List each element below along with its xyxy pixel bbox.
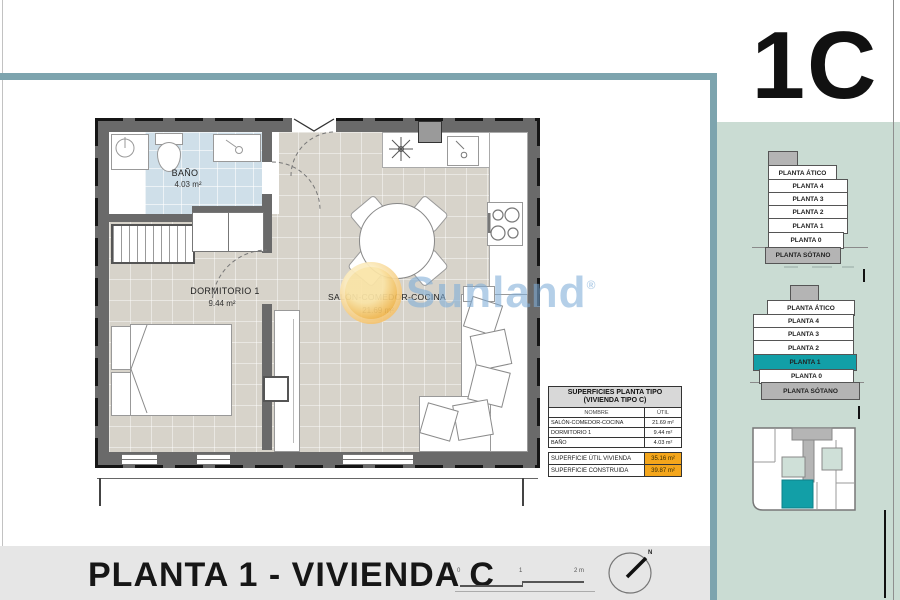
- washer-icon: [384, 134, 418, 165]
- scale-label-2m: 2 m: [574, 568, 584, 574]
- faint-caption: [812, 266, 832, 268]
- sheet-title: PLANTA 1 - VIVIENDA C: [88, 556, 495, 595]
- faint-caption: [784, 266, 798, 268]
- scale-bar-connector: [522, 581, 523, 587]
- table-row: DORMITORIO 1 9.44 m²: [548, 428, 682, 438]
- bedroom-name: DORMITORIO 1: [175, 286, 275, 296]
- scale-bar-segment: [522, 581, 584, 583]
- highlighted-unit: [782, 480, 813, 508]
- wall-bath-stub-upper: [262, 132, 272, 162]
- scale-baseline: [455, 591, 595, 592]
- flue-column: [418, 121, 442, 143]
- page: { "unit_label": "1C", "plan": { "rooms":…: [0, 0, 900, 600]
- entrance-opening: [292, 118, 336, 132]
- bathroom-name: BAÑO: [150, 168, 220, 178]
- floor-plan: BAÑO 4.03 m² DORMITORIO 1 9.44 m²: [95, 118, 540, 480]
- window: [122, 454, 157, 465]
- table-row: BAÑO 4.03 m²: [548, 438, 682, 448]
- hob-icon: [487, 202, 523, 246]
- table-total-row: SUPERFICIE ÚTIL VIVIENDA 35.16 m²: [548, 452, 682, 465]
- building-footprint-diagram: [752, 427, 856, 511]
- surfaces-table-colheads: NOMBRE ÚTIL: [548, 408, 682, 418]
- entrance-door-icon: [292, 118, 336, 132]
- registration-line: [884, 510, 886, 598]
- window: [197, 454, 230, 465]
- faint-caption: [842, 266, 854, 268]
- bed-icon: [130, 324, 232, 416]
- cabinet-icon: [192, 212, 264, 252]
- scale-label-0: 0: [457, 568, 460, 574]
- nightstand-icon: [111, 372, 131, 416]
- living-room-area: 21.69 m²: [343, 306, 413, 315]
- sofa-cushion: [452, 399, 494, 441]
- stack2-level: PLANTA SÓTANO: [761, 382, 860, 400]
- wall-bottom-hatch: [95, 465, 540, 468]
- frame-vertical-bar: [710, 73, 717, 600]
- terrace-line: [97, 478, 538, 479]
- shower-tray-icon: [111, 134, 149, 170]
- dining-table-icon: [359, 203, 435, 279]
- north-label: N: [648, 550, 652, 556]
- bedroom-area: 9.44 m²: [187, 299, 257, 308]
- wall-bath-bottom: [109, 214, 192, 222]
- scale-bar-segment: [460, 585, 522, 587]
- terrace-tick: [522, 478, 524, 506]
- wall-left-hatch: [95, 118, 98, 468]
- wall-right-hatch: [537, 118, 540, 468]
- frame-top-bar: [0, 73, 712, 80]
- nightstand-icon: [111, 326, 131, 370]
- registered-mark: ®: [587, 278, 597, 292]
- surfaces-table: SUPERFICIES PLANTA TIPO (VIVIENDA TIPO C…: [548, 386, 682, 477]
- north-arrow-icon: [605, 550, 657, 596]
- table-total-row: SUPERFICIE CONSTRUIDA 39.87 m²: [548, 464, 682, 477]
- page-left-border: [2, 0, 3, 600]
- unit-code-label: 1C: [730, 14, 900, 122]
- wardrobe-icon: [111, 224, 195, 264]
- registration-tick: [858, 406, 860, 419]
- terrace-tick: [99, 478, 101, 506]
- table-row: SALÓN-COMEDOR-COCINA 21.69 m²: [548, 418, 682, 428]
- kitchen-sink-icon: [447, 136, 479, 166]
- sink-counter-icon: [213, 134, 261, 162]
- stack1-level: PLANTA SÓTANO: [765, 247, 841, 264]
- surfaces-table-title: SUPERFICIES PLANTA TIPO (VIVIENDA TIPO C…: [548, 386, 682, 408]
- window: [343, 454, 413, 465]
- living-room-name: SALÓN-COMEDOR-COCINA: [327, 292, 447, 302]
- scale-label-1: 1: [519, 568, 522, 574]
- bathroom-area: 4.03 m²: [153, 180, 223, 189]
- wall-niche: [263, 376, 289, 402]
- registration-tick: [863, 269, 865, 282]
